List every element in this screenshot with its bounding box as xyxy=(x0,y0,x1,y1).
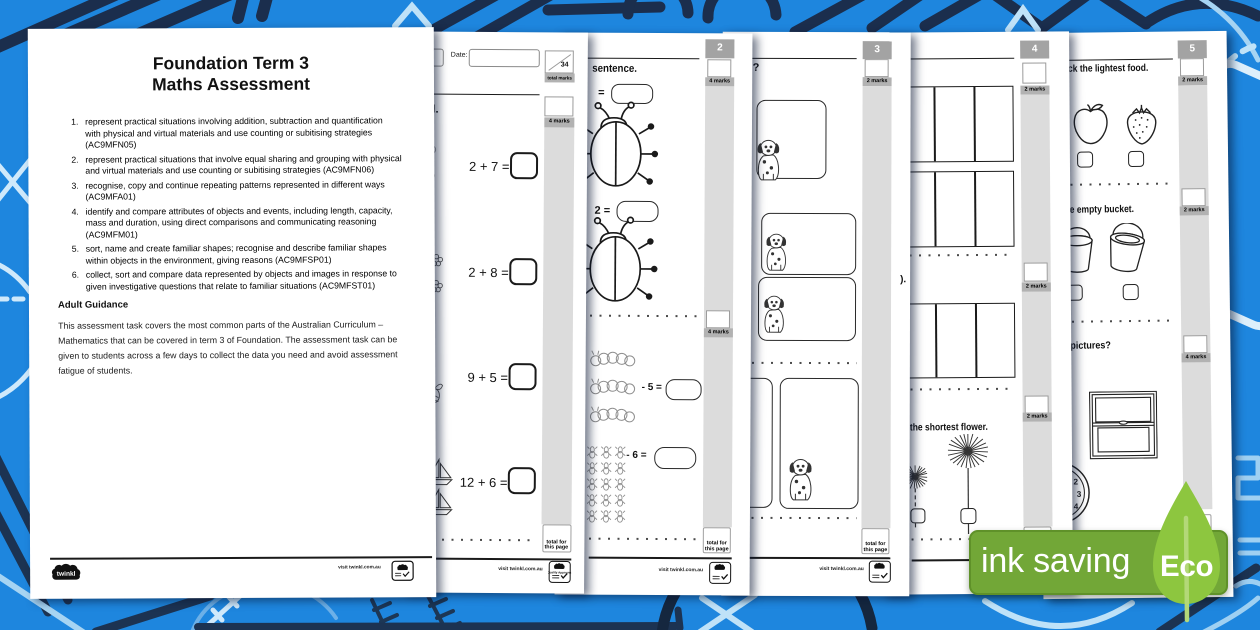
svg-text:2: 2 xyxy=(1073,477,1078,486)
svg-text:twinkl: twinkl xyxy=(57,571,76,578)
svg-text:Quality Approved: Quality Approved xyxy=(548,570,571,574)
svg-text:3: 3 xyxy=(1077,490,1082,499)
svg-text:4: 4 xyxy=(1074,502,1079,511)
